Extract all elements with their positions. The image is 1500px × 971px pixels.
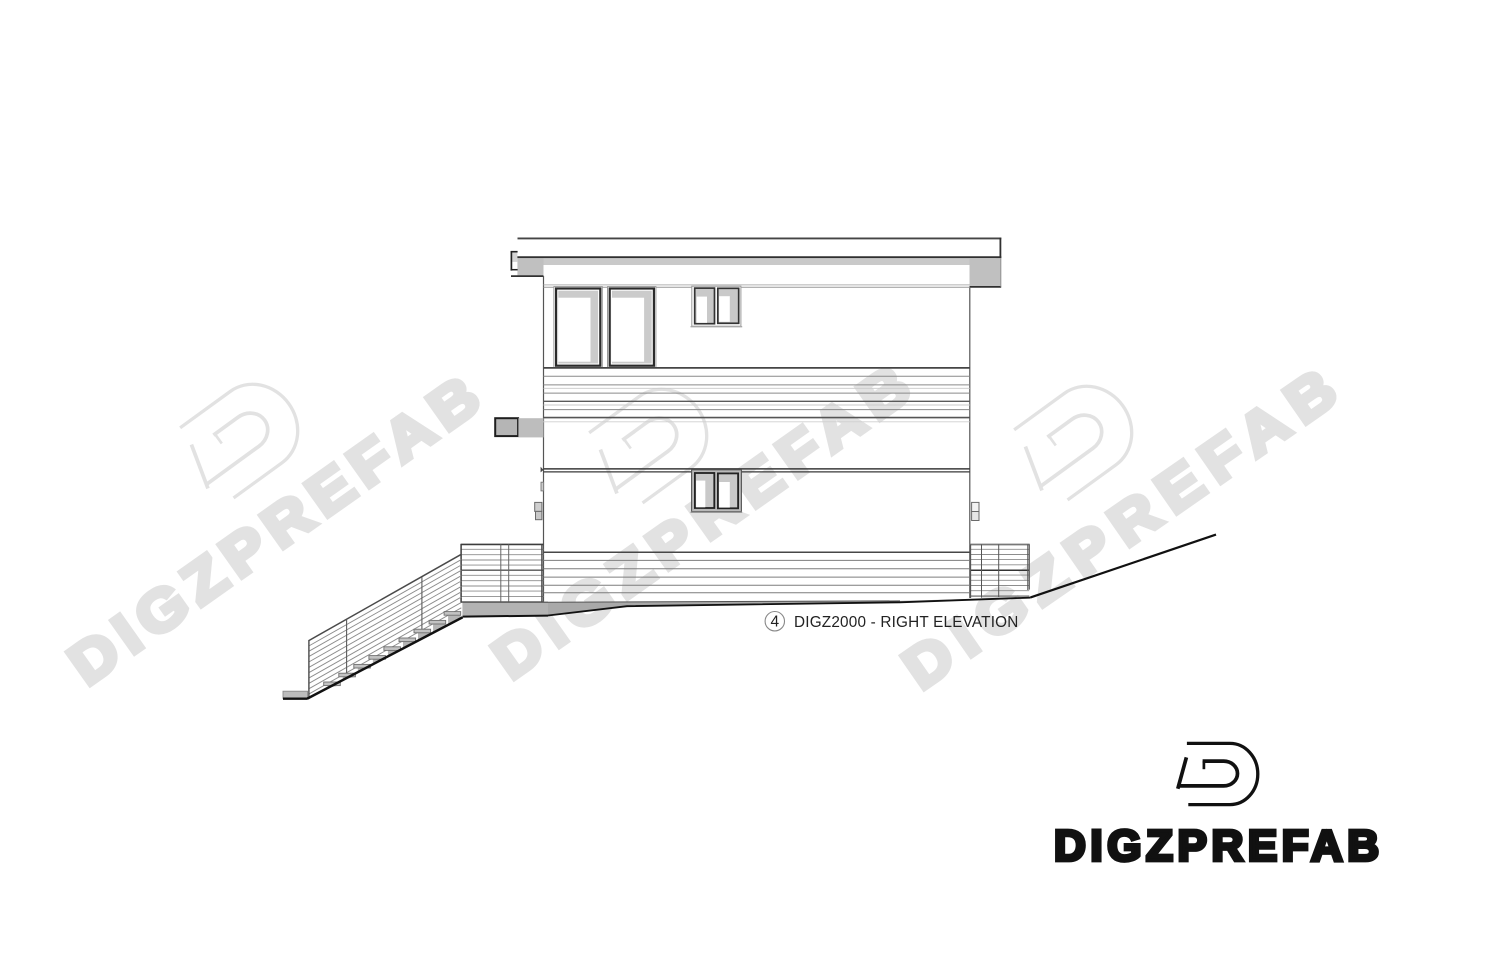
svg-text:DIGZPREFAB: DIGZPREFAB	[1054, 822, 1384, 871]
svg-text:4: 4	[770, 614, 779, 631]
svg-text:DIGZ2000 - RIGHT ELEVATION: DIGZ2000 - RIGHT ELEVATION	[794, 614, 1019, 631]
svg-text:DIGZPREFAB: DIGZPREFAB	[57, 358, 498, 697]
svg-text:DIGZPREFAB: DIGZPREFAB	[891, 350, 1357, 701]
svg-text:DIGZPREFAB: DIGZPREFAB	[481, 347, 929, 691]
